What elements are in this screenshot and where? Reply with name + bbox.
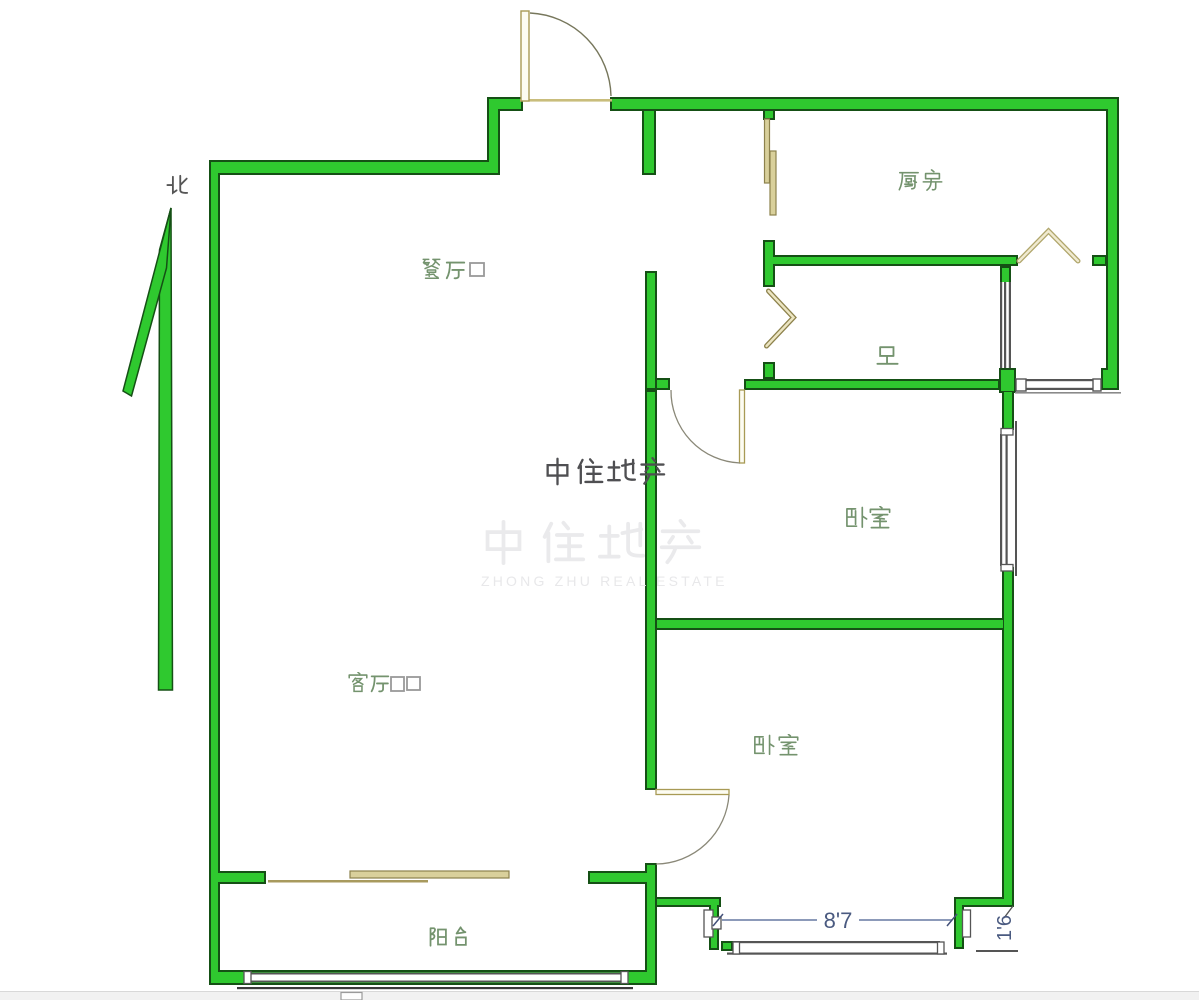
svg-text:8'7: 8'7 — [824, 908, 853, 933]
svg-text:1'6: 1'6 — [994, 915, 1016, 941]
svg-text:ZHONG ZHU REAL ESTATE: ZHONG ZHU REAL ESTATE — [481, 573, 728, 589]
